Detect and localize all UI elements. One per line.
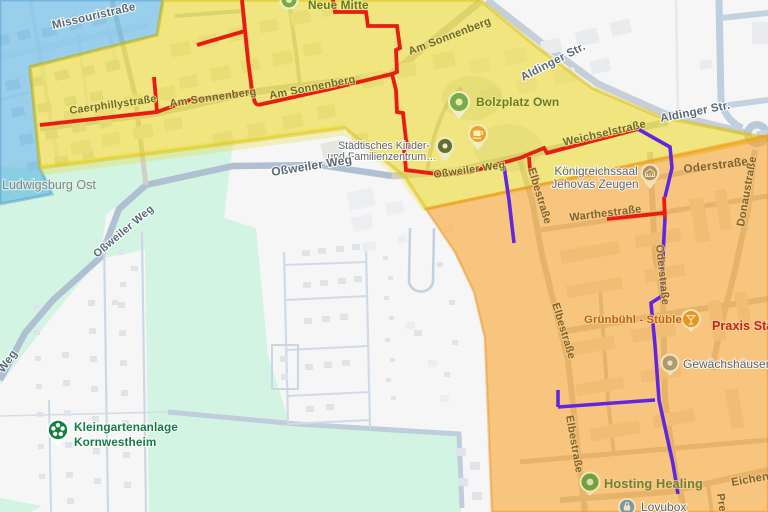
svg-text:Hosting Healing: Hosting Healing: [604, 476, 703, 491]
svg-text:Neue Mitte: Neue Mitte: [308, 0, 369, 12]
svg-text:Ludwigsburg Ost: Ludwigsburg Ost: [2, 178, 96, 192]
svg-text:Gewächshäuser: Gewächshäuser: [683, 357, 768, 371]
svg-text:Pre: Pre: [714, 493, 728, 512]
svg-text:Bolzplatz Own: Bolzplatz Own: [476, 95, 559, 109]
svg-text:Lovubox: Lovubox: [641, 500, 686, 512]
svg-text:Kleingartenanlage: Kleingartenanlage: [74, 420, 178, 434]
svg-text:Königreichssaal: Königreichssaal: [554, 164, 637, 178]
svg-text:Kornwestheim: Kornwestheim: [74, 435, 156, 449]
svg-text:Grünbühl - Stüble: Grünbühl - Stüble: [584, 314, 682, 326]
svg-text:Jehovas Zeugen: Jehovas Zeugen: [551, 177, 638, 191]
svg-text:Praxis Stär: Praxis Stär: [712, 319, 768, 333]
